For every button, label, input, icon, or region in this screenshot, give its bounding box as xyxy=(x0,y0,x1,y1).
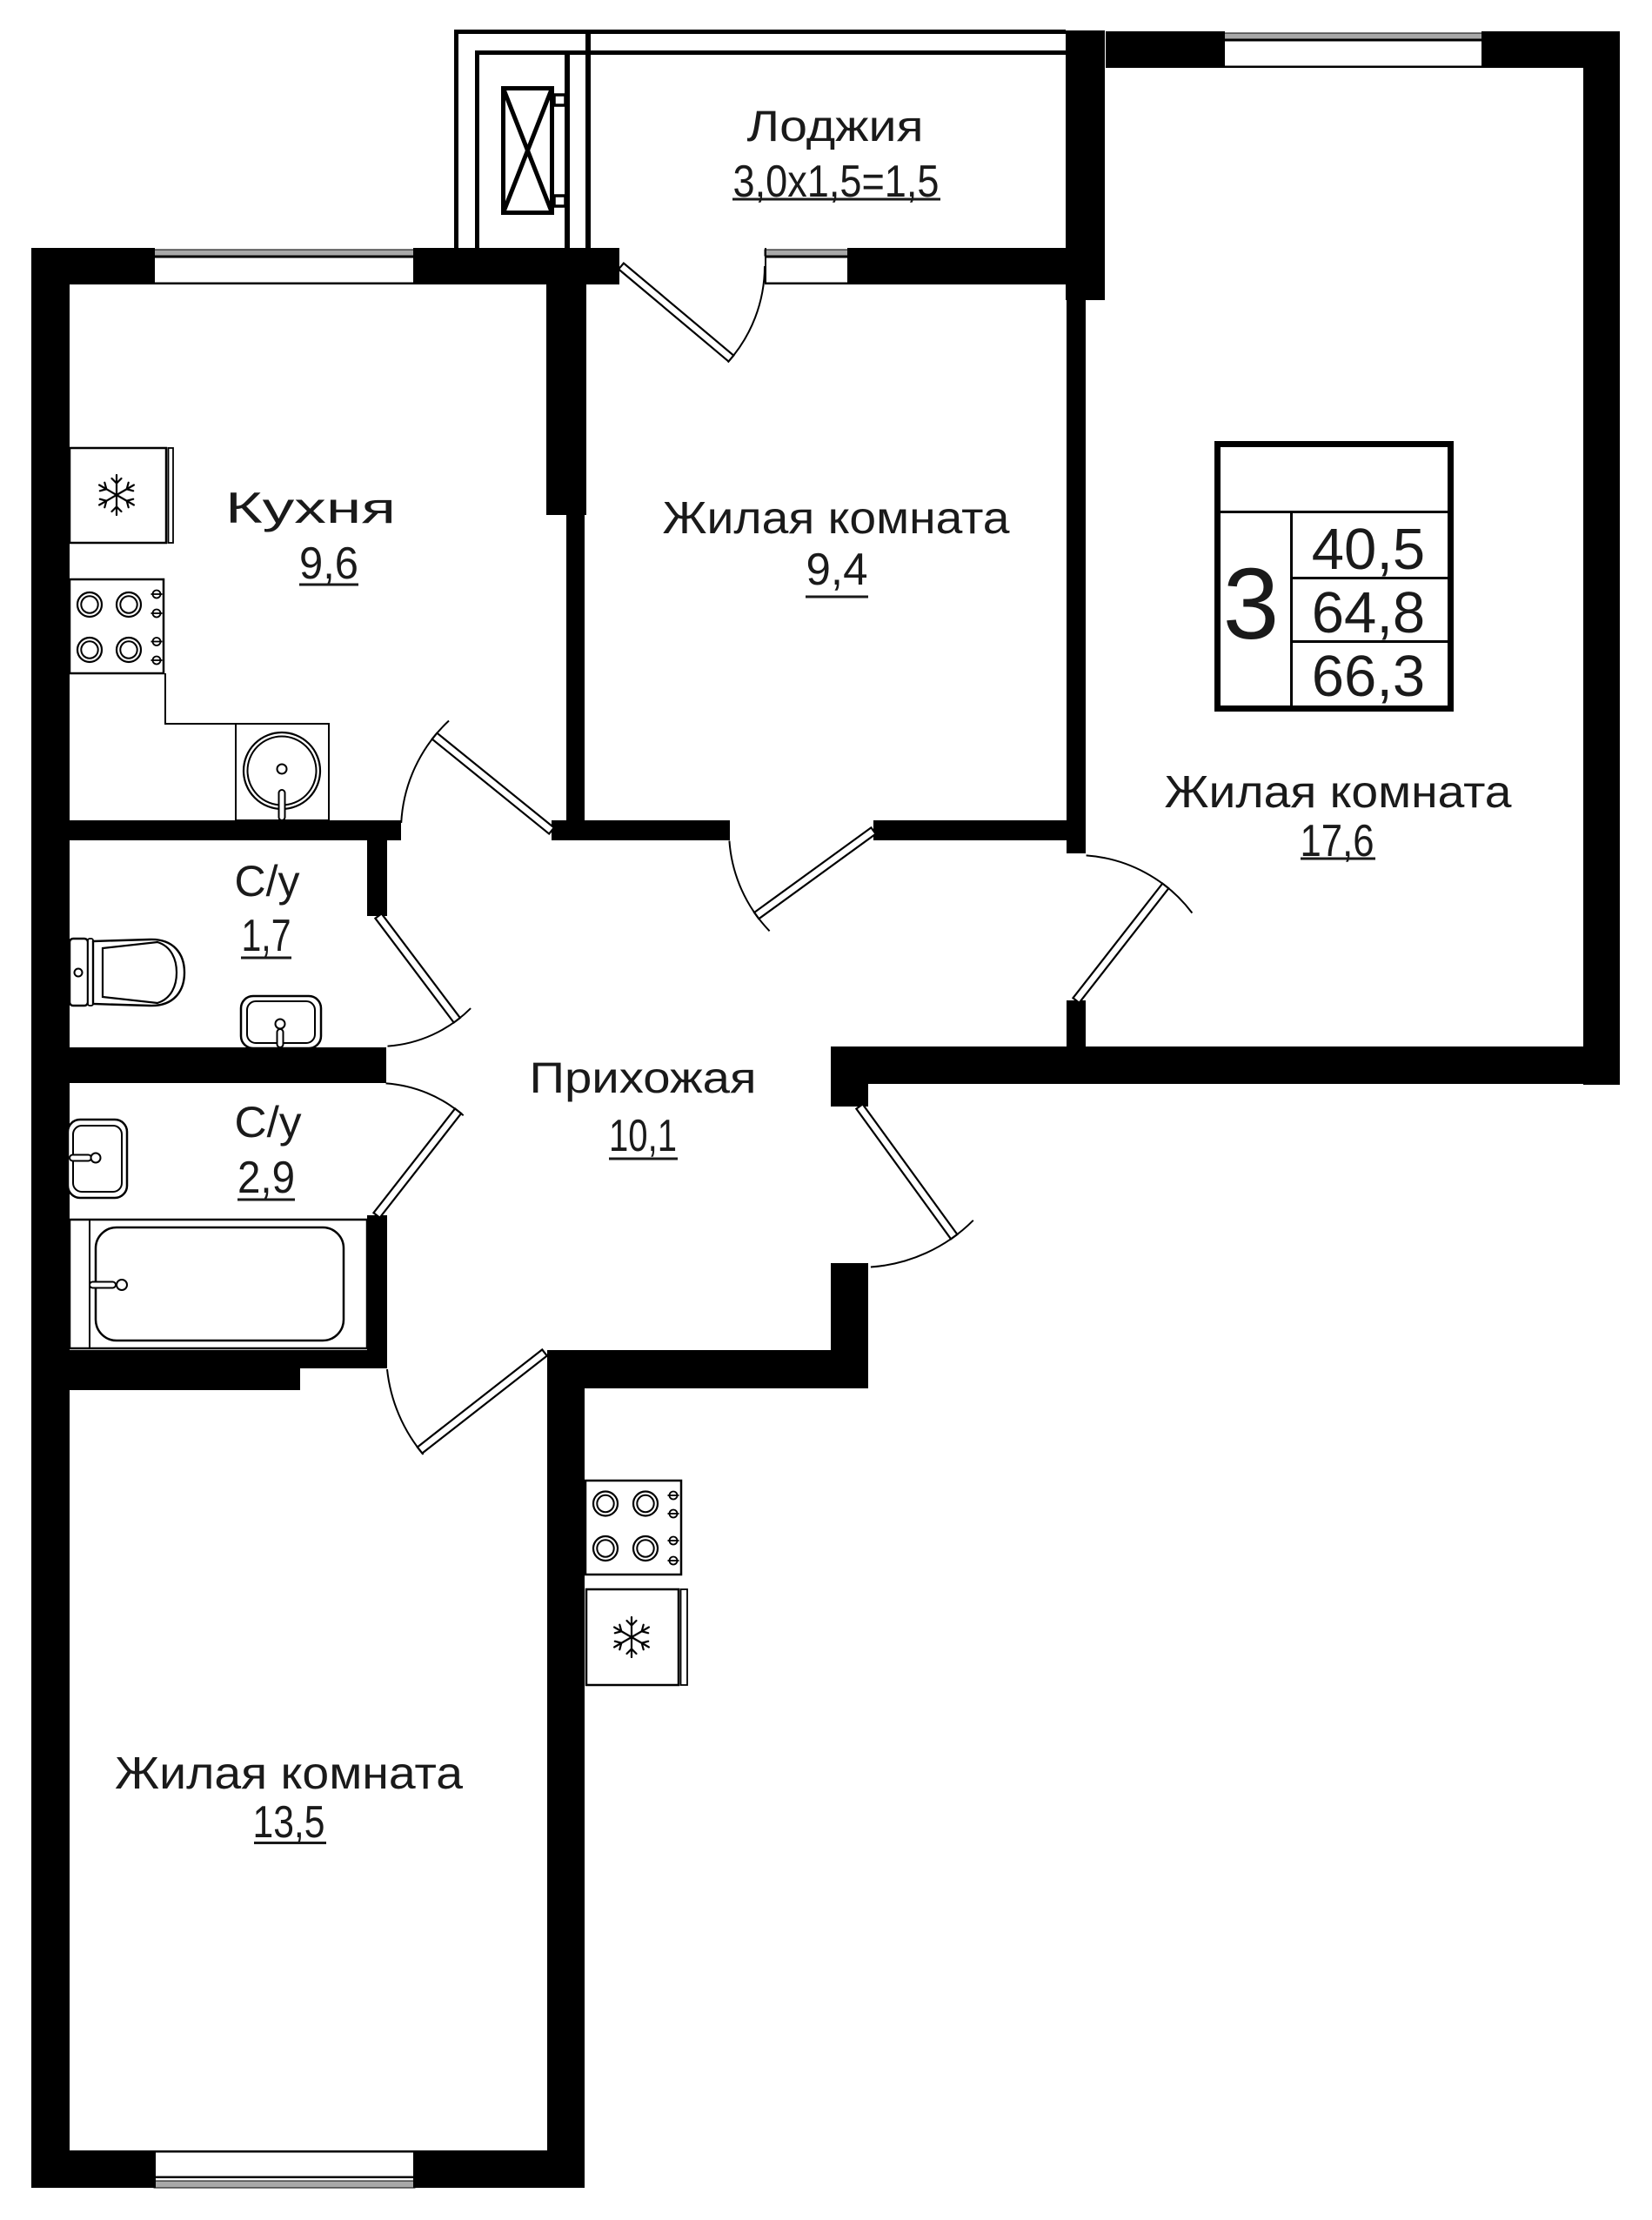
svg-text:2,9: 2,9 xyxy=(237,1153,295,1203)
svg-text:Жилая комната: Жилая комната xyxy=(115,1749,463,1799)
svg-text:Жилая комната: Жилая комната xyxy=(1165,767,1512,818)
svg-text:1,7: 1,7 xyxy=(242,911,291,961)
svg-text:40,5: 40,5 xyxy=(1312,517,1425,582)
svg-text:9,4: 9,4 xyxy=(806,545,868,595)
svg-text:64,8: 64,8 xyxy=(1312,580,1425,645)
svg-text:Лоджия: Лоджия xyxy=(747,102,924,150)
svg-text:Кухня: Кухня xyxy=(225,484,396,532)
svg-text:3: 3 xyxy=(1223,547,1280,660)
svg-text:С/у: С/у xyxy=(235,857,300,906)
svg-text:Жилая комната: Жилая комната xyxy=(663,493,1010,544)
svg-text:13,5: 13,5 xyxy=(253,1797,325,1848)
svg-text:С/у: С/у xyxy=(235,1098,302,1147)
svg-text:Прихожая: Прихожая xyxy=(530,1053,757,1102)
svg-text:66,3: 66,3 xyxy=(1312,644,1425,709)
svg-text:10,1: 10,1 xyxy=(609,1111,677,1161)
svg-text:9,6: 9,6 xyxy=(299,538,358,589)
